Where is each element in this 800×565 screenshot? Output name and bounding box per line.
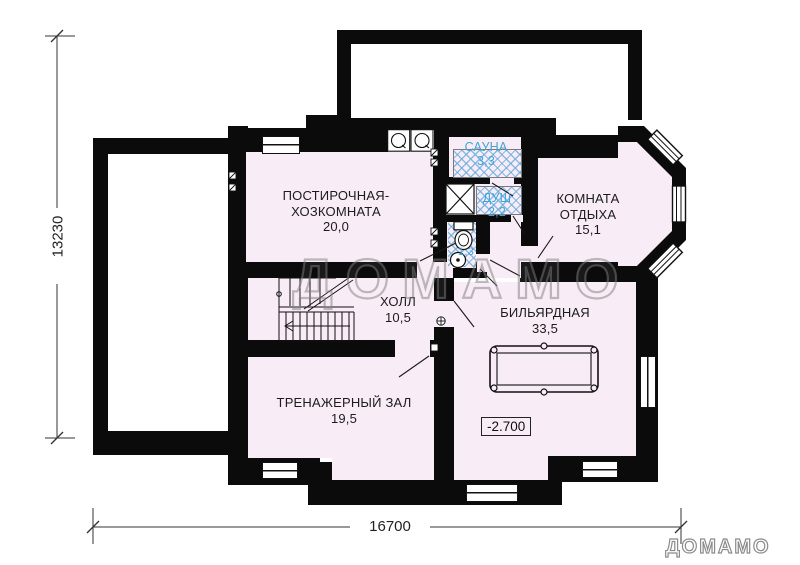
room-gym: [332, 458, 434, 480]
room-label-shower: ДУШ 2,2: [468, 191, 526, 219]
elevation-mark: -2.700: [481, 417, 531, 436]
room-label-laundry: ПОСТИРОЧНАЯ- ХОЗКОМНАТА 20,0: [246, 188, 426, 235]
wall: [628, 30, 642, 120]
wall: [93, 138, 246, 154]
room-label-gym: ТРЕНАЖЕРНЫЙ ЗАЛ 19,5: [256, 395, 432, 426]
door-opening: [490, 177, 514, 184]
window: [640, 356, 656, 408]
wall: [93, 431, 246, 455]
watermark-center: ДОМАМО: [212, 246, 712, 311]
room-label-lounge: КОМНАТА ОТДЫХА 15,1: [538, 191, 638, 238]
room-area: 33,5: [478, 321, 612, 337]
room-area: 10,5: [356, 310, 440, 326]
room-area: 3,3: [449, 154, 523, 168]
window: [466, 484, 518, 502]
dimension-height-label: 13230: [50, 199, 67, 275]
floor-plan: ПОСТИРОЧНАЯ- ХОЗКОМНАТА 20,0 САУНА 3,3 Д…: [0, 0, 800, 565]
wall: [447, 177, 490, 184]
terrace-interior: [351, 44, 628, 118]
side-wing-interior: [108, 154, 228, 431]
washing-machine-icons: [387, 129, 434, 152]
room-area: 20,0: [246, 219, 426, 235]
wall: [93, 138, 108, 455]
room-label-sauna: САУНА 3,3: [449, 140, 523, 168]
room-area: 2,2: [468, 205, 526, 219]
window: [262, 462, 298, 479]
room-area: 15,1: [538, 222, 638, 238]
room-billiard: [454, 456, 548, 480]
bay-window-pane: [673, 186, 686, 222]
dimension-width-label: 16700: [352, 518, 428, 535]
wall: [337, 30, 351, 120]
room-area: 19,5: [256, 411, 432, 427]
wall: [337, 30, 642, 44]
brand-logo: ДОМАМО: [643, 536, 793, 559]
billiard-table-icon: [486, 342, 602, 396]
window: [582, 461, 618, 478]
window: [262, 136, 300, 154]
door-opening: [395, 340, 430, 357]
